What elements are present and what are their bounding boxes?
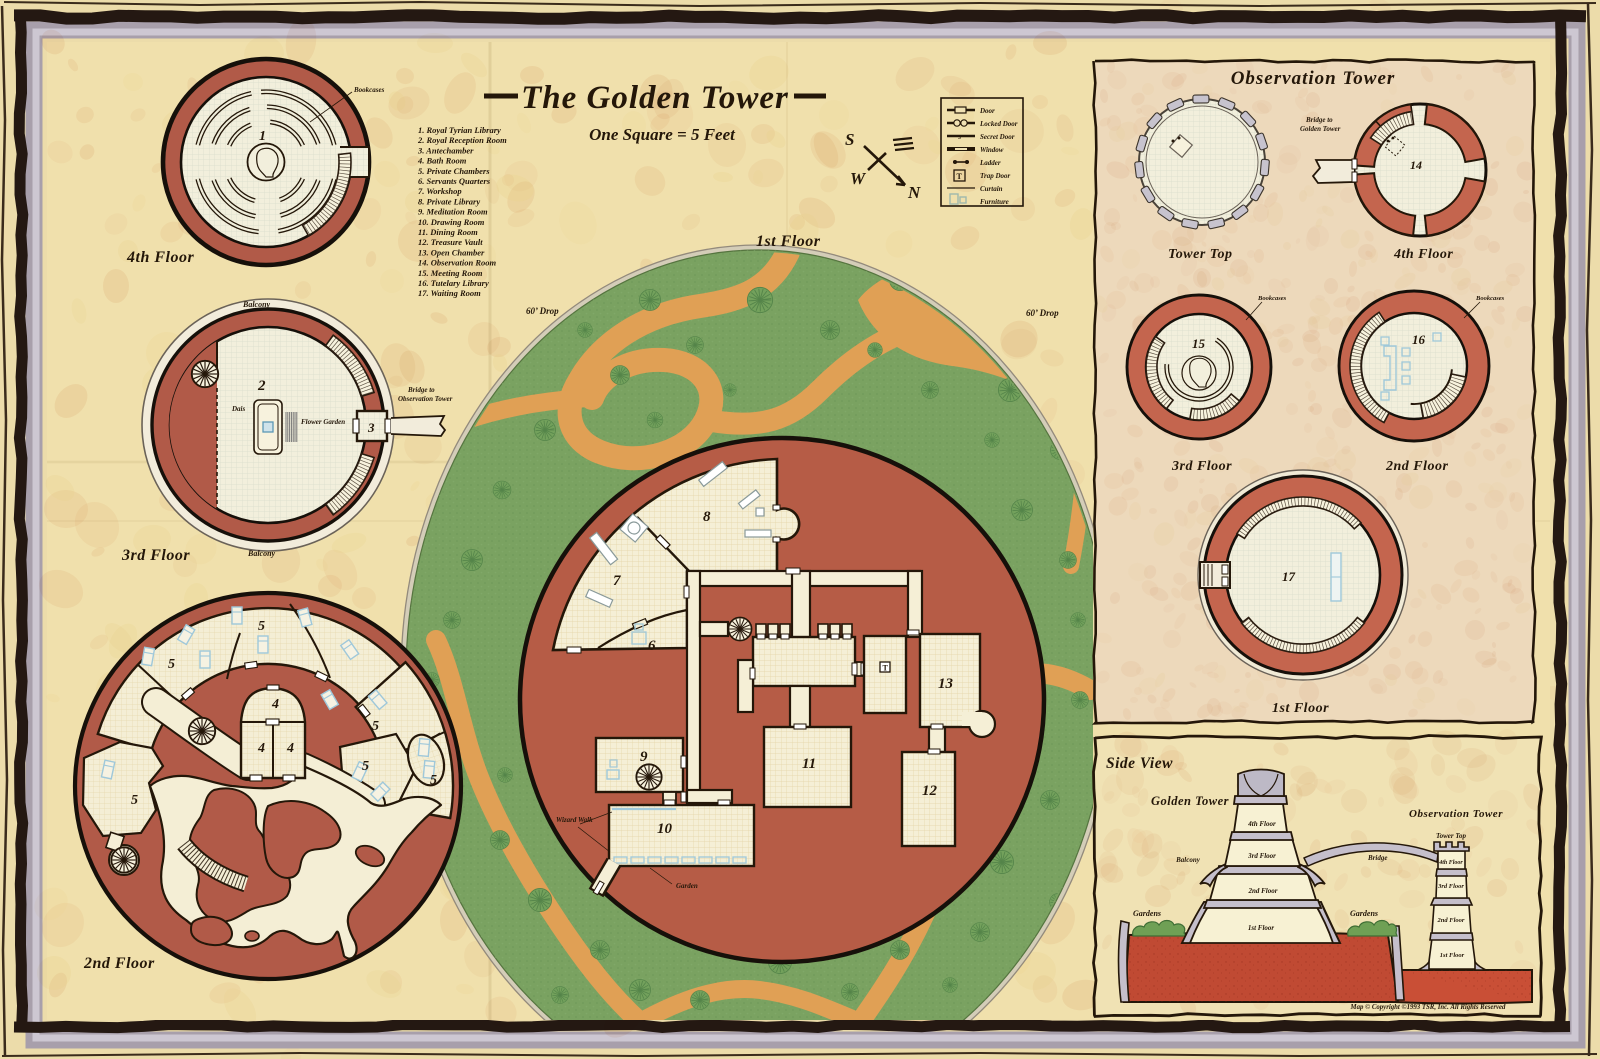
svg-text:10. Drawing Room: 10. Drawing Room <box>418 217 485 227</box>
svg-text:Map © Copyright ©1993 TSR, Inc: Map © Copyright ©1993 TSR, Inc. All Righ… <box>1350 1004 1507 1011</box>
svg-text:16. Tutelary Library: 16. Tutelary Library <box>418 278 489 288</box>
svg-text:1st Floor: 1st Floor <box>756 233 821 250</box>
svg-text:Bridge: Bridge <box>1367 854 1387 862</box>
svg-text:17: 17 <box>1282 569 1296 584</box>
svg-text:Observation Tower: Observation Tower <box>1409 808 1503 820</box>
svg-text:Garden: Garden <box>676 882 698 890</box>
svg-text:60’ Drop: 60’ Drop <box>1026 308 1059 318</box>
svg-text:4th Floor: 4th Floor <box>126 249 194 266</box>
svg-text:S: S <box>845 130 854 149</box>
svg-text:17. Waiting Room: 17. Waiting Room <box>418 288 481 298</box>
svg-text:8: 8 <box>703 509 711 525</box>
svg-text:Flower Garden: Flower Garden <box>301 418 345 426</box>
svg-text:12. Treasure Vault: 12. Treasure Vault <box>418 237 483 247</box>
svg-text:1st Floor: 1st Floor <box>1440 952 1465 959</box>
svg-text:Bridge to: Bridge to <box>407 386 435 394</box>
svg-text:7: 7 <box>613 573 621 589</box>
svg-text:2. Royal Reception Room: 2. Royal Reception Room <box>417 135 507 145</box>
svg-text:W: W <box>850 169 867 188</box>
svg-text:3rd Floor: 3rd Floor <box>1247 852 1276 860</box>
svg-text:5: 5 <box>430 773 437 788</box>
svg-text:15: 15 <box>1192 336 1206 351</box>
svg-text:Golden Tower: Golden Tower <box>1151 794 1229 808</box>
svg-text:5. Private Chambers: 5. Private Chambers <box>418 166 490 176</box>
svg-text:2: 2 <box>257 378 266 394</box>
svg-text:1: 1 <box>259 129 266 144</box>
svg-text:Dais: Dais <box>231 405 246 413</box>
svg-text:Tower Top: Tower Top <box>1168 247 1233 262</box>
svg-text:9: 9 <box>640 749 648 765</box>
svg-text:Side View: Side View <box>1106 755 1173 772</box>
svg-text:Window: Window <box>980 146 1004 154</box>
svg-text:Furniture: Furniture <box>980 198 1009 206</box>
svg-text:5: 5 <box>372 719 379 734</box>
svg-text:Bookcases: Bookcases <box>1257 295 1287 302</box>
svg-text:3rd Floor: 3rd Floor <box>121 547 190 564</box>
svg-text:14. Observation Room: 14. Observation Room <box>418 258 497 268</box>
svg-text:14: 14 <box>1410 158 1422 172</box>
svg-text:Bridge to: Bridge to <box>1305 116 1333 124</box>
svg-text:One Square = 5 Feet: One Square = 5 Feet <box>589 125 736 144</box>
svg-text:1st Floor: 1st Floor <box>1272 701 1329 716</box>
svg-text:6: 6 <box>648 638 656 654</box>
svg-text:4th Floor: 4th Floor <box>1393 247 1453 262</box>
svg-text:3: 3 <box>367 420 375 435</box>
svg-text:Observation Tower: Observation Tower <box>398 395 453 403</box>
svg-text:T: T <box>883 664 889 673</box>
svg-text:2nd Floor: 2nd Floor <box>1385 459 1449 474</box>
svg-text:Bookcases: Bookcases <box>1475 295 1505 302</box>
svg-text:Balcony: Balcony <box>242 300 271 309</box>
svg-text:16: 16 <box>1412 332 1426 347</box>
svg-text:Observation Tower: Observation Tower <box>1231 68 1396 89</box>
svg-text:T: T <box>957 172 963 181</box>
svg-text:4th Floor: 4th Floor <box>1438 860 1463 866</box>
svg-text:Secret Door: Secret Door <box>980 133 1015 141</box>
svg-text:15. Meeting Room: 15. Meeting Room <box>418 268 483 278</box>
svg-text:3. Antechamber: 3. Antechamber <box>417 145 474 155</box>
svg-text:12: 12 <box>922 783 938 799</box>
svg-text:13: 13 <box>938 676 954 692</box>
svg-text:13. Open Chamber: 13. Open Chamber <box>418 247 485 257</box>
svg-text:Door: Door <box>979 107 995 115</box>
svg-text:Wizard Walk: Wizard Walk <box>556 816 593 824</box>
svg-text:Curtain: Curtain <box>980 185 1003 193</box>
svg-text:1st Floor: 1st Floor <box>1248 924 1275 932</box>
svg-text:5: 5 <box>362 759 369 774</box>
svg-text:Locked Door: Locked Door <box>979 120 1018 128</box>
svg-text:The Golden Tower: The Golden Tower <box>521 80 789 116</box>
svg-text:N: N <box>907 183 921 202</box>
svg-text:Golden Tower: Golden Tower <box>1300 125 1341 133</box>
svg-text:2nd Floor: 2nd Floor <box>83 955 155 972</box>
svg-text:4: 4 <box>286 741 294 756</box>
svg-text:Gardens: Gardens <box>1350 909 1378 918</box>
svg-text:11: 11 <box>802 756 816 772</box>
svg-text:Trap Door: Trap Door <box>980 172 1011 180</box>
svg-text:Ladder: Ladder <box>979 159 1001 167</box>
svg-text:4: 4 <box>271 697 279 712</box>
svg-text:8. Private Library: 8. Private Library <box>418 196 480 206</box>
svg-text:7. Workshop: 7. Workshop <box>418 186 462 196</box>
svg-text:3rd Floor: 3rd Floor <box>1171 459 1232 474</box>
svg-text:Balcony: Balcony <box>247 549 276 558</box>
svg-text:s: s <box>958 132 961 141</box>
svg-text:11. Dining Room: 11. Dining Room <box>418 227 478 237</box>
svg-text:5: 5 <box>131 793 138 808</box>
svg-text:5: 5 <box>258 619 265 634</box>
svg-text:Tower Top: Tower Top <box>1436 832 1467 840</box>
svg-text:6. Servants Quarters: 6. Servants Quarters <box>418 176 491 186</box>
svg-text:5: 5 <box>168 657 175 672</box>
svg-text:4. Bath Room: 4. Bath Room <box>417 156 467 166</box>
svg-text:1. Royal Tyrian Library: 1. Royal Tyrian Library <box>418 125 501 135</box>
svg-text:4: 4 <box>257 741 265 756</box>
svg-text:3rd Floor: 3rd Floor <box>1437 883 1464 890</box>
svg-text:2nd Floor: 2nd Floor <box>1437 917 1465 924</box>
svg-text:Balcony: Balcony <box>1175 856 1201 864</box>
svg-text:4th Floor: 4th Floor <box>1247 820 1276 828</box>
svg-text:2nd Floor: 2nd Floor <box>1248 887 1278 895</box>
svg-text:Gardens: Gardens <box>1133 909 1161 918</box>
svg-text:9. Meditation Room: 9. Meditation Room <box>418 207 488 217</box>
svg-text:60’ Drop: 60’ Drop <box>526 306 559 316</box>
svg-text:10: 10 <box>657 821 673 837</box>
svg-text:Bookcases: Bookcases <box>353 86 385 94</box>
